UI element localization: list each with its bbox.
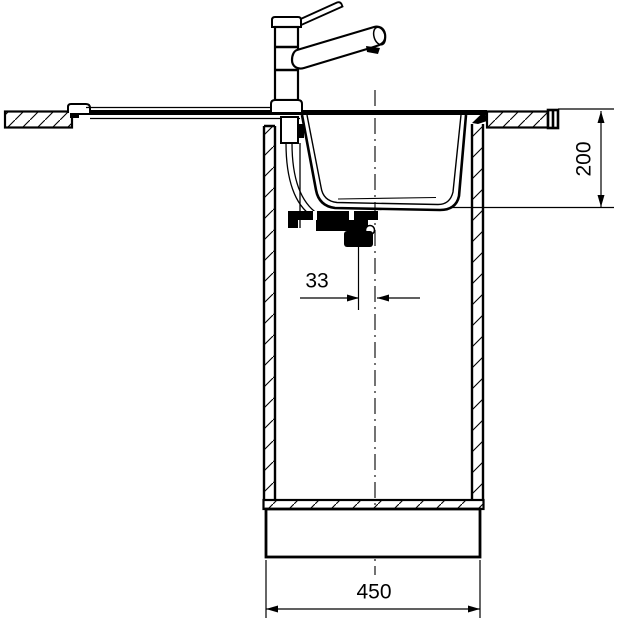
cabinet-right-wall <box>472 124 483 500</box>
plinth <box>266 509 480 557</box>
dimension-cabinet-width: 450 <box>266 560 480 618</box>
faucet-spout <box>292 26 387 69</box>
dimension-label-33: 33 <box>305 270 328 293</box>
drain-trap <box>344 231 373 247</box>
sink-section-drawing: 200 33 450 <box>0 0 618 625</box>
spout-outlet <box>366 46 380 54</box>
dimension-label-200: 200 <box>573 141 596 176</box>
base-cabinet <box>264 124 484 557</box>
countertop-end-cap <box>548 110 558 128</box>
countertop-left <box>5 112 72 128</box>
dimension-label-450: 450 <box>356 581 391 604</box>
faucet-shank <box>281 117 298 143</box>
faucet-base <box>271 100 302 112</box>
sink-basin <box>302 115 466 210</box>
faucet-body <box>271 17 304 143</box>
cabinet-left-wall <box>264 126 275 500</box>
countertop-right <box>487 110 558 128</box>
rim-clip-left <box>70 113 79 118</box>
dimension-drain-offset: 33 <box>300 270 420 302</box>
technical-drawing-page: 200 33 450 <box>0 0 618 625</box>
faucet <box>271 2 387 143</box>
drain-assembly <box>286 143 378 310</box>
